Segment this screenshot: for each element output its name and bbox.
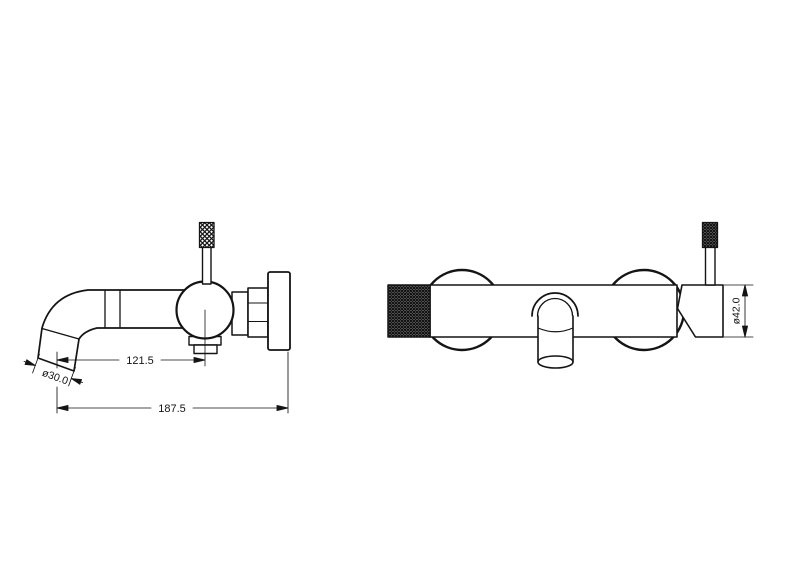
- dimension-spout-reach: 121.5: [57, 352, 205, 368]
- dim-label-overall-projection: 187.5: [158, 403, 186, 415]
- spout-tip-knurl: [388, 285, 430, 337]
- dim-ext-tick-a: [33, 354, 40, 373]
- dim-arrow-right: [277, 405, 288, 410]
- dim-arrow-right: [194, 357, 205, 362]
- wall-flange: [268, 272, 290, 350]
- dim-label-outlet-diameter: ø30.0: [40, 367, 69, 388]
- wall-nut: [248, 288, 268, 337]
- aerator-lower: [194, 345, 217, 354]
- dim-arrow-b: [71, 379, 81, 385]
- end-cap: [678, 285, 724, 337]
- dim-label-spout-reach: 121.5: [126, 355, 154, 367]
- dim-label-body-diameter: ø42.0: [731, 297, 743, 324]
- dim-arrow-a: [25, 360, 35, 366]
- spout-outlet-ellipse: [538, 356, 573, 368]
- front-view: ø42.0: [388, 223, 753, 369]
- dim-arrow-bottom: [742, 326, 747, 337]
- dimension-overall-projection: 187.5: [57, 352, 288, 415]
- handle-stem: [203, 247, 212, 284]
- handle-knurl: [703, 223, 718, 248]
- handle-knurl: [200, 223, 215, 248]
- dimension-body-diameter: ø42.0: [724, 285, 753, 337]
- handle-stem: [706, 247, 716, 285]
- side-view: 121.5 ø30.0 187.5: [24, 223, 290, 416]
- dim-arrow-top: [742, 285, 747, 296]
- drawing-sheet: 121.5 ø30.0 187.5: [0, 0, 800, 565]
- dim-arrow-left: [57, 405, 68, 410]
- valve-neck: [232, 292, 248, 335]
- technical-drawing-canvas: 121.5 ø30.0 187.5: [0, 0, 800, 565]
